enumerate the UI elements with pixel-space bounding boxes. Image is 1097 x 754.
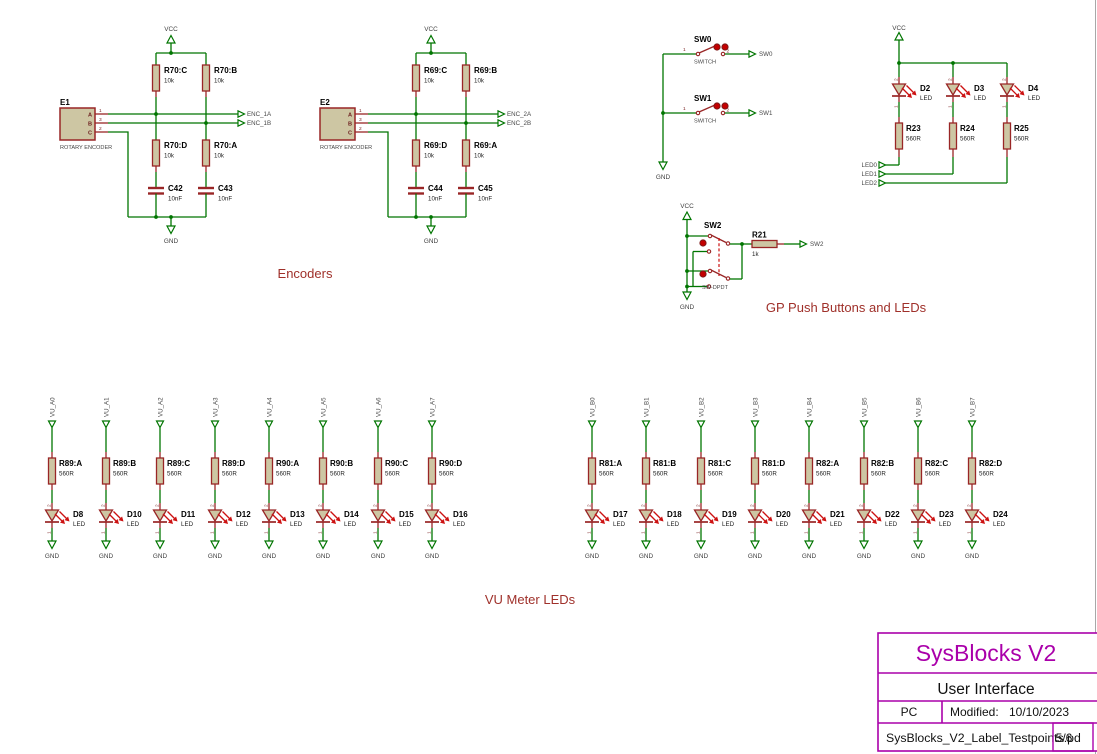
net-flag-icon xyxy=(266,421,273,428)
vu-led-column: VU_B5R82:B560R2D22LED1GND xyxy=(857,397,900,560)
gnd-label: GND xyxy=(585,553,600,560)
resistor-body xyxy=(153,140,160,166)
resistor-body xyxy=(266,458,273,484)
led-type: LED xyxy=(613,521,626,528)
junction-dot xyxy=(429,51,433,55)
capacitor-ref: C42 xyxy=(168,184,183,193)
resistor-value: 10k xyxy=(424,78,435,85)
device-label: ROTARY ENCODER xyxy=(60,145,112,151)
resistor-body xyxy=(896,123,903,149)
resistor-value: 560R xyxy=(330,471,345,478)
gnd-label: GND xyxy=(748,553,763,560)
pin-letter: B xyxy=(88,122,92,128)
net-flag-icon xyxy=(749,51,756,57)
vcc-label: VCC xyxy=(680,203,694,210)
resistor-body xyxy=(698,458,705,484)
net-flag-icon xyxy=(498,120,505,126)
pin-number: 2 xyxy=(750,504,756,507)
led-type: LED xyxy=(290,521,303,528)
led-arrow-icon xyxy=(440,512,448,520)
gp-led-column: 2D3LED1R24560RLED1 xyxy=(862,63,987,178)
switch-contact-icon xyxy=(696,52,699,55)
led-ref: D14 xyxy=(344,510,359,519)
gnd-arrow-icon xyxy=(102,541,110,549)
gnd-label: GND xyxy=(911,553,926,560)
gnd-arrow-icon xyxy=(914,541,922,549)
resistor-body xyxy=(1004,123,1011,149)
led-ref: D21 xyxy=(830,510,845,519)
net-flag-icon xyxy=(157,421,164,428)
resistor-ref: R90:A xyxy=(276,459,299,468)
gnd-arrow-icon xyxy=(427,226,435,234)
net-flag-icon xyxy=(752,421,759,428)
gnd-label: GND xyxy=(45,553,60,560)
resistor-value: 10k xyxy=(474,78,485,85)
net-flag-icon xyxy=(915,421,922,428)
net-label: VU_B7 xyxy=(970,397,977,417)
pin-number: 2 xyxy=(913,504,919,507)
resistor-value: 560R xyxy=(762,471,777,478)
switch-contact-icon xyxy=(726,277,729,280)
switch-contact-icon xyxy=(726,242,729,245)
resistor-value: 560R xyxy=(960,136,975,143)
switch-ref: SW2 xyxy=(704,221,722,230)
gnd-label: GND xyxy=(262,553,277,560)
resistor-value: 560R xyxy=(385,471,400,478)
net-flag-icon xyxy=(879,180,886,186)
net-label: ENC_1A xyxy=(247,111,272,118)
led-type: LED xyxy=(974,95,987,102)
pin-number: 2 xyxy=(804,504,810,507)
gnd-arrow-icon xyxy=(659,162,667,170)
net-flag-icon xyxy=(749,110,756,116)
pin-number: 2 xyxy=(948,78,954,81)
junction-dot xyxy=(464,121,468,125)
resistor-body xyxy=(413,65,420,91)
resistor-body xyxy=(157,458,164,484)
resistor-value: 560R xyxy=(653,471,668,478)
led-ref: D13 xyxy=(290,510,305,519)
gnd-arrow-icon xyxy=(156,541,164,549)
switch-contact-icon xyxy=(707,250,710,253)
button-cap-icon xyxy=(714,103,720,109)
capacitor-ref: C45 xyxy=(478,184,493,193)
led-arrow-icon xyxy=(272,514,280,522)
dpdt-sw2: VCCSW2R211kSW2SW-DPDTGND xyxy=(680,203,824,311)
button-cap-icon xyxy=(714,44,720,50)
pin-number: 3 xyxy=(99,117,102,123)
resistor-body xyxy=(589,458,596,484)
vcc-arrow-icon xyxy=(683,212,691,220)
resistor-body xyxy=(752,458,759,484)
resistor-ref: R81:D xyxy=(762,459,785,468)
resistor-ref: R82:B xyxy=(871,459,894,468)
switch-arm-icon xyxy=(699,105,715,112)
net-flag-icon xyxy=(238,111,245,117)
pin-number: 2 xyxy=(967,504,973,507)
resistor-body xyxy=(203,140,210,166)
net-label: VU_B5 xyxy=(862,397,869,417)
net-flag-icon xyxy=(429,421,436,428)
encoder-ref: E1 xyxy=(60,98,70,107)
vu-led-column: VU_A0R89:A560R2D8LED1GND xyxy=(45,397,86,560)
resistor-ref: R69:B xyxy=(474,66,497,75)
net-flag-icon xyxy=(806,421,813,428)
vcc-label: VCC xyxy=(164,26,178,33)
capacitor-ref: C44 xyxy=(428,184,443,193)
net-flag-icon xyxy=(375,421,382,428)
gnd-label: GND xyxy=(680,304,695,311)
led-ref: D16 xyxy=(453,510,468,519)
net-label: VU_A4 xyxy=(267,397,274,417)
resistor-value: 560R xyxy=(925,471,940,478)
vu-led-column: VU_B6R82:C560R2D23LED1GND xyxy=(911,397,954,560)
button-cap-icon xyxy=(700,271,706,277)
vu-led-column: VU_B4R82:A560R2D21LED1GND xyxy=(802,397,845,560)
resistor-body xyxy=(203,65,210,91)
resistor-ref: R81:C xyxy=(708,459,731,468)
resistor-ref: R82:A xyxy=(816,459,839,468)
resistor-value: 10k xyxy=(474,153,485,160)
vu-led-column: VU_B7R82:D560R2D24LED1GND xyxy=(965,397,1008,560)
pin-number: 2 xyxy=(264,504,270,507)
switch-arm-icon xyxy=(699,46,715,53)
net-flag-icon xyxy=(861,421,868,428)
net-label: ENC_2B xyxy=(507,120,531,127)
led-ref: D20 xyxy=(776,510,791,519)
pin-number: 2 xyxy=(359,126,362,132)
led-ref: D22 xyxy=(885,510,900,519)
resistor-body xyxy=(752,241,777,248)
resistor-body xyxy=(320,458,327,484)
net-label: VU_A3 xyxy=(213,397,220,417)
led-ref: D24 xyxy=(993,510,1008,519)
gnd-label: GND xyxy=(371,553,386,560)
gnd-label: GND xyxy=(164,238,179,245)
net-label: ENC_2A xyxy=(507,111,532,118)
net-label: LED0 xyxy=(862,162,878,169)
pin-number: 2 xyxy=(641,504,647,507)
vu-led-column: VU_A2R89:C560R2D11LED1GND xyxy=(153,397,196,560)
net-label: VU_B3 xyxy=(753,397,760,417)
vcc-arrow-icon xyxy=(167,36,175,44)
gnd-arrow-icon xyxy=(428,541,436,549)
resistor-value: 560R xyxy=(59,471,74,478)
led-ref: D11 xyxy=(181,510,196,519)
led-ref: D10 xyxy=(127,510,142,519)
led-ref: D4 xyxy=(1028,84,1039,93)
led-type: LED xyxy=(776,521,789,528)
led-arrow-icon xyxy=(386,512,394,520)
button-cap-icon xyxy=(700,240,706,246)
led-arrow-icon xyxy=(381,514,389,522)
led-ref: D18 xyxy=(667,510,682,519)
net-flag-icon xyxy=(212,421,219,428)
resistor-ref: R21 xyxy=(752,231,767,240)
led-type: LED xyxy=(181,521,194,528)
pin-number: 2 xyxy=(587,504,593,507)
pin-number: 3 xyxy=(359,117,362,123)
resistor-body xyxy=(969,458,976,484)
vu-led-column: VU_A4R90:A560R2D13LED1GND xyxy=(262,397,305,560)
led-ref: D17 xyxy=(613,510,628,519)
pushbutton-sw0: SW012SW0SWITCH xyxy=(663,35,773,66)
junction-dot xyxy=(414,215,418,219)
gnd-arrow-icon xyxy=(968,541,976,549)
led-arrow-icon xyxy=(277,512,285,520)
resistor-body xyxy=(915,458,922,484)
gnd-arrow-icon xyxy=(48,541,56,549)
resistor-value: 10k xyxy=(214,78,225,85)
resistor-ref: R82:C xyxy=(925,459,948,468)
led-type: LED xyxy=(344,521,357,528)
device-label: SW-DPDT xyxy=(702,285,729,291)
resistor-ref: R90:D xyxy=(439,459,462,468)
gnd-label: GND xyxy=(99,553,114,560)
resistor-ref: R89:C xyxy=(167,459,190,468)
net-label: ENC_1B xyxy=(247,120,271,127)
capacitor-value: 10nF xyxy=(428,196,442,203)
led-type: LED xyxy=(667,521,680,528)
device-label: SWITCH xyxy=(694,119,716,125)
pin-letter: C xyxy=(348,131,352,137)
resistor-body xyxy=(375,458,382,484)
vu-led-column: VU_A6R90:C560R2D15LED1GND xyxy=(371,397,414,560)
led-type: LED xyxy=(236,521,249,528)
vu-led-column: VU_A3R89:D560R2D12LED1GND xyxy=(208,397,251,560)
led-ref: D23 xyxy=(939,510,954,519)
resistor-ref: R69:C xyxy=(424,66,447,75)
resistor-value: 560R xyxy=(871,471,886,478)
net-label: VU_A0 xyxy=(50,397,57,417)
pin-number: 2 xyxy=(210,504,216,507)
pin-number: 1 xyxy=(359,108,362,114)
vcc-arrow-icon xyxy=(895,33,903,41)
led-type: LED xyxy=(993,521,1006,528)
gnd-arrow-icon xyxy=(588,541,596,549)
net-label: SW1 xyxy=(759,110,773,117)
net-label: VU_A7 xyxy=(430,397,437,417)
resistor-body xyxy=(643,458,650,484)
junction-dot xyxy=(414,112,418,116)
vcc-arrow-icon xyxy=(427,36,435,44)
pin-letter: C xyxy=(88,131,92,137)
pin-number: 2 xyxy=(101,504,107,507)
resistor-value: 560R xyxy=(276,471,291,478)
resistor-value: 10k xyxy=(424,153,435,160)
net-flag-icon xyxy=(238,120,245,126)
encoder-block-2: VCCR69:C10kR69:B10kENC_2AENC_2BE2ABC132R… xyxy=(320,26,532,245)
net-label: VU_B6 xyxy=(916,397,923,417)
resistor-body xyxy=(103,458,110,484)
gnd-arrow-icon xyxy=(374,541,382,549)
resistor-ref: R89:D xyxy=(222,459,245,468)
pin-number: 2 xyxy=(99,126,102,132)
net-flag-icon xyxy=(879,162,886,168)
junction-dot xyxy=(204,121,208,125)
modified-label: Modified: xyxy=(950,705,999,719)
resistor-value: 560R xyxy=(439,471,454,478)
resistor-body xyxy=(806,458,813,484)
led-type: LED xyxy=(830,521,843,528)
resistor-ref: R81:B xyxy=(653,459,676,468)
vu-led-column: VU_B3R81:D560R2D20LED1GND xyxy=(748,397,791,560)
resistor-body xyxy=(463,65,470,91)
net-flag-icon xyxy=(49,421,56,428)
gnd-arrow-icon xyxy=(642,541,650,549)
modified-date: 10/10/2023 xyxy=(1009,705,1069,719)
pin-number: 2 xyxy=(427,504,433,507)
net-label: VU_B2 xyxy=(699,397,706,417)
net-label: VU_A2 xyxy=(158,397,165,417)
vu-left-bank: VU_A0R89:A560R2D8LED1GNDVU_A1R89:B560R2D… xyxy=(45,397,468,560)
caption-gp-push-buttons: GP Push Buttons and LEDs xyxy=(766,300,927,315)
filename-cell: SysBlocks_V2_Label_Testpoints.pd xyxy=(886,731,1081,745)
gnd-arrow-icon xyxy=(805,541,813,549)
gnd-arrow-icon xyxy=(860,541,868,549)
gnd-label: GND xyxy=(424,238,439,245)
vu-led-column: VU_A5R90:B560R2D14LED1GND xyxy=(316,397,359,560)
vu-right-bank: VU_B0R81:A560R2D17LED1GNDVU_B1R81:B560R2… xyxy=(585,397,1008,560)
gnd-label: GND xyxy=(857,553,872,560)
schematic-canvas: Encoders GP Push Buttons and LEDs VU Met… xyxy=(0,0,1097,754)
led-arrow-icon xyxy=(435,514,443,522)
gnd-arrow-icon xyxy=(751,541,759,549)
capacitor-value: 10nF xyxy=(218,196,232,203)
resistor-ref: R24 xyxy=(960,124,975,133)
led-type: LED xyxy=(73,521,86,528)
device-label: SWITCH xyxy=(694,60,716,66)
switch-section: GNDSW012SW0SWITCHSW112SW1SWITCHVCCSW2R21… xyxy=(656,35,824,311)
switch-ref: SW1 xyxy=(694,94,712,103)
device-label: ROTARY ENCODER xyxy=(320,145,372,151)
pin-number: 1 xyxy=(683,106,686,112)
caption-encoders: Encoders xyxy=(278,266,333,281)
gnd-arrow-icon xyxy=(211,541,219,549)
resistor-ref: R90:B xyxy=(330,459,353,468)
resistor-ref: R69:A xyxy=(474,141,497,150)
pin-number: 1 xyxy=(683,47,686,53)
caption-vu-meter-leds: VU Meter LEDs xyxy=(485,592,576,607)
net-label: SW0 xyxy=(759,51,773,58)
pin-number: 2 xyxy=(47,504,53,507)
net-label: VU_A1 xyxy=(104,397,111,417)
resistor-value: 560R xyxy=(816,471,831,478)
resistor-value: 10k xyxy=(164,153,175,160)
resistor-body xyxy=(429,458,436,484)
resistor-ref: R69:D xyxy=(424,141,447,150)
author-cell: PC xyxy=(901,705,918,719)
net-flag-icon xyxy=(320,421,327,428)
net-flag-icon xyxy=(589,421,596,428)
resistor-body xyxy=(153,65,160,91)
gp-led-block: VCC2D2LED1R23560RLED02D3LED1R24560RLED12… xyxy=(862,25,1041,187)
led-type: LED xyxy=(920,95,933,102)
capacitor-ref: C43 xyxy=(218,184,233,193)
led-type: LED xyxy=(399,521,412,528)
led-arrow-icon xyxy=(326,514,334,522)
pin-letter: A xyxy=(348,113,352,119)
resistor-body xyxy=(463,140,470,166)
led-ref: D12 xyxy=(236,510,251,519)
resistor-value: 1k xyxy=(752,251,759,258)
resistor-value: 560R xyxy=(167,471,182,478)
resistor-value: 560R xyxy=(708,471,723,478)
gnd-label: GND xyxy=(208,553,223,560)
led-type: LED xyxy=(939,521,952,528)
vu-led-column: VU_A7R90:D560R2D16LED1GND xyxy=(425,397,468,560)
resistor-ref: R81:A xyxy=(599,459,622,468)
gp-led-column: 2D2LED1R23560RLED0 xyxy=(862,63,933,169)
gnd-arrow-icon xyxy=(167,226,175,234)
resistor-value: 10k xyxy=(164,78,175,85)
resistor-ref: R23 xyxy=(906,124,921,133)
net-flag-icon xyxy=(969,421,976,428)
net-flag-icon xyxy=(498,111,505,117)
led-type: LED xyxy=(127,521,140,528)
net-flag-icon xyxy=(698,421,705,428)
pin-letter: B xyxy=(348,122,352,128)
vu-led-column: VU_B0R81:A560R2D17LED1GND xyxy=(585,397,628,560)
switch-contact-icon xyxy=(721,52,724,55)
gnd-label: GND xyxy=(639,553,654,560)
net-label: LED1 xyxy=(862,171,878,178)
pin-letter: A xyxy=(88,113,92,119)
gnd-label: GND xyxy=(425,553,440,560)
pin-number: 2 xyxy=(318,504,324,507)
switch-ref: SW0 xyxy=(694,35,712,44)
resistor-ref: R70:C xyxy=(164,66,187,75)
resistor-ref: R89:A xyxy=(59,459,82,468)
led-type: LED xyxy=(885,521,898,528)
junction-dot xyxy=(169,51,173,55)
vcc-label: VCC xyxy=(892,25,906,32)
led-arrow-icon xyxy=(331,512,339,520)
resistor-ref: R90:C xyxy=(385,459,408,468)
vu-led-column: VU_B2R81:C560R2D19LED1GND xyxy=(694,397,737,560)
doc-title: SysBlocks V2 xyxy=(916,640,1057,666)
vu-led-column: VU_B1R81:B560R2D18LED1GND xyxy=(639,397,682,560)
junction-dot xyxy=(154,112,158,116)
gnd-arrow-icon xyxy=(265,541,273,549)
net-label: VU_B1 xyxy=(644,397,651,417)
led-ref: D3 xyxy=(974,84,985,93)
encoder-ref: E2 xyxy=(320,98,330,107)
led-ref: D8 xyxy=(73,510,84,519)
switch-contact-icon xyxy=(721,111,724,114)
gnd-label: GND xyxy=(316,553,331,560)
net-label: VU_B4 xyxy=(807,397,814,417)
led-type: LED xyxy=(722,521,735,528)
gnd-arrow-icon xyxy=(683,292,691,300)
resistor-value: 10k xyxy=(214,153,225,160)
net-label: VU_B0 xyxy=(590,397,597,417)
capacitor-value: 10nF xyxy=(168,196,182,203)
resistor-body xyxy=(212,458,219,484)
title-block: SysBlocks V2 User Interface PC Modified:… xyxy=(878,633,1097,751)
switch-contact-icon xyxy=(696,111,699,114)
resistor-body xyxy=(49,458,56,484)
capacitor-value: 10nF xyxy=(478,196,492,203)
led-ref: D19 xyxy=(722,510,737,519)
junction-dot xyxy=(154,215,158,219)
led-ref: D2 xyxy=(920,84,931,93)
resistor-value: 560R xyxy=(113,471,128,478)
net-flag-icon xyxy=(800,241,807,247)
net-label: LED2 xyxy=(862,180,878,187)
resistor-ref: R70:D xyxy=(164,141,187,150)
doc-subtitle: User Interface xyxy=(937,681,1034,698)
